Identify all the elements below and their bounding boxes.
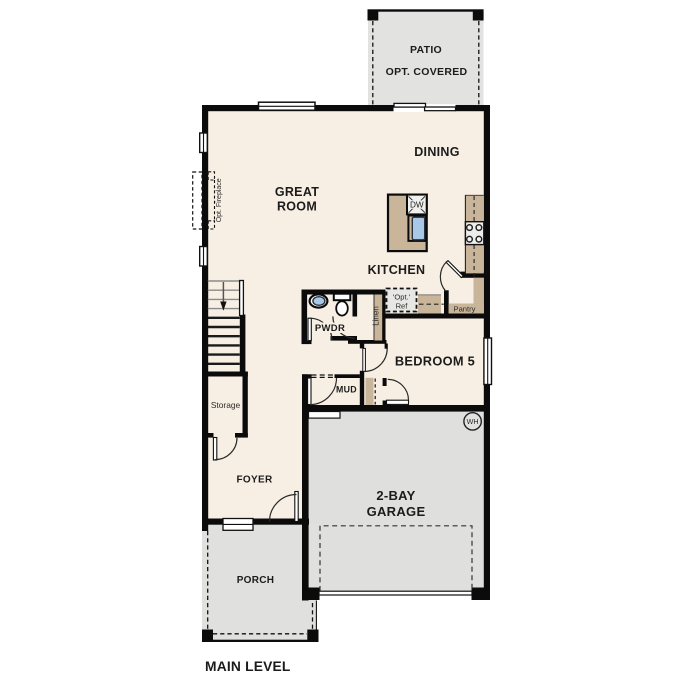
svg-text:OPT. COVERED: OPT. COVERED	[386, 66, 468, 78]
svg-text:BEDROOM 5: BEDROOM 5	[395, 354, 475, 369]
svg-text:DW: DW	[410, 201, 424, 210]
svg-text:PATIO: PATIO	[410, 44, 442, 56]
svg-text:KITCHEN: KITCHEN	[368, 263, 426, 277]
svg-text:MAIN LEVEL: MAIN LEVEL	[205, 659, 291, 674]
svg-text:GARAGE: GARAGE	[367, 504, 426, 519]
svg-text:WH: WH	[467, 417, 479, 426]
svg-text:Ref: Ref	[396, 302, 409, 311]
svg-text:ROOM: ROOM	[277, 199, 317, 213]
svg-text:GREAT: GREAT	[275, 185, 319, 199]
svg-text:Pantry: Pantry	[454, 305, 476, 314]
svg-text:Opt. Fireplace: Opt. Fireplace	[216, 178, 223, 222]
svg-text:Linen: Linen	[372, 306, 381, 326]
svg-text:2-BAY: 2-BAY	[376, 488, 415, 503]
svg-text:Storage: Storage	[211, 400, 241, 410]
svg-text:'Opt.': 'Opt.'	[393, 293, 411, 302]
svg-text:FOYER: FOYER	[237, 475, 273, 486]
svg-text:PORCH: PORCH	[237, 575, 275, 586]
svg-text:MUD: MUD	[336, 384, 357, 394]
svg-text:DINING: DINING	[414, 145, 460, 159]
svg-text:PWDR: PWDR	[315, 323, 345, 334]
